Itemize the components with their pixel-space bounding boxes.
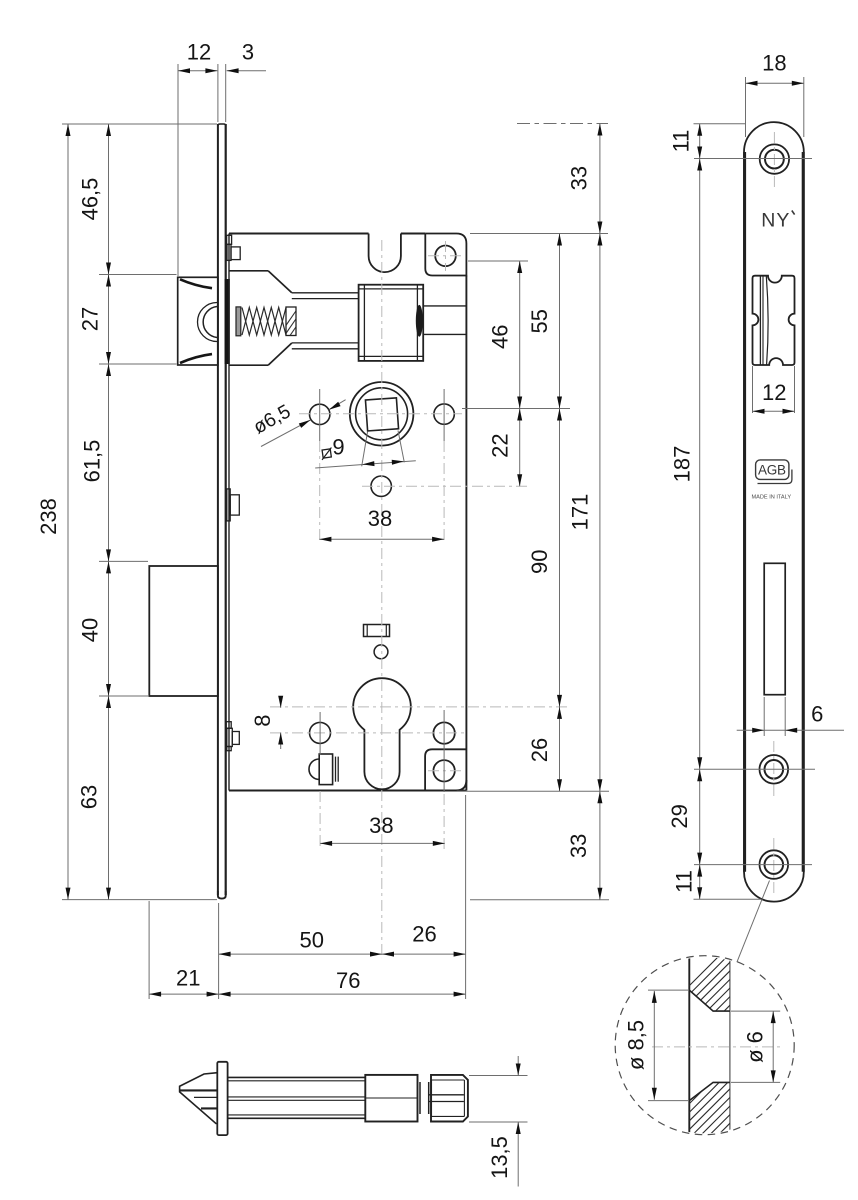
svg-text:12: 12 <box>187 40 211 65</box>
svg-text:18: 18 <box>762 51 786 76</box>
svg-text:33: 33 <box>566 834 591 858</box>
svg-text:171: 171 <box>568 494 593 531</box>
svg-text:187: 187 <box>669 446 694 483</box>
svg-text:38: 38 <box>369 813 393 838</box>
svg-text:NY: NY <box>761 209 790 231</box>
svg-text:33: 33 <box>566 166 591 190</box>
svg-text:29: 29 <box>667 804 692 828</box>
svg-text:6: 6 <box>811 701 823 726</box>
svg-text:40: 40 <box>78 618 103 642</box>
svg-text:22: 22 <box>488 433 513 457</box>
svg-text:ø 6: ø 6 <box>743 1031 768 1063</box>
svg-text:50: 50 <box>299 928 323 953</box>
svg-text:46: 46 <box>488 324 513 348</box>
svg-text:46,5: 46,5 <box>78 178 103 221</box>
svg-text:8: 8 <box>250 714 275 726</box>
svg-text:38: 38 <box>368 506 392 531</box>
svg-text:AGB: AGB <box>758 462 786 477</box>
svg-text:76: 76 <box>336 968 360 993</box>
svg-text:61,5: 61,5 <box>80 440 105 483</box>
svg-text:27: 27 <box>78 307 103 331</box>
svg-text:13,5: 13,5 <box>487 1136 512 1179</box>
svg-text:238: 238 <box>36 498 61 535</box>
svg-text:3: 3 <box>242 40 254 65</box>
svg-text:55: 55 <box>527 309 552 333</box>
svg-text:63: 63 <box>77 785 102 809</box>
svg-text:21: 21 <box>176 966 200 991</box>
svg-text:9: 9 <box>332 435 344 460</box>
svg-text:26: 26 <box>527 738 552 762</box>
svg-text:MADE IN ITALY: MADE IN ITALY <box>752 495 792 501</box>
svg-text:26: 26 <box>412 922 436 947</box>
svg-text:ø 8,5: ø 8,5 <box>624 1020 649 1070</box>
svg-text:11: 11 <box>672 870 697 893</box>
svg-text:12: 12 <box>762 380 786 405</box>
svg-text:11: 11 <box>669 130 694 153</box>
svg-text:90: 90 <box>527 549 552 573</box>
